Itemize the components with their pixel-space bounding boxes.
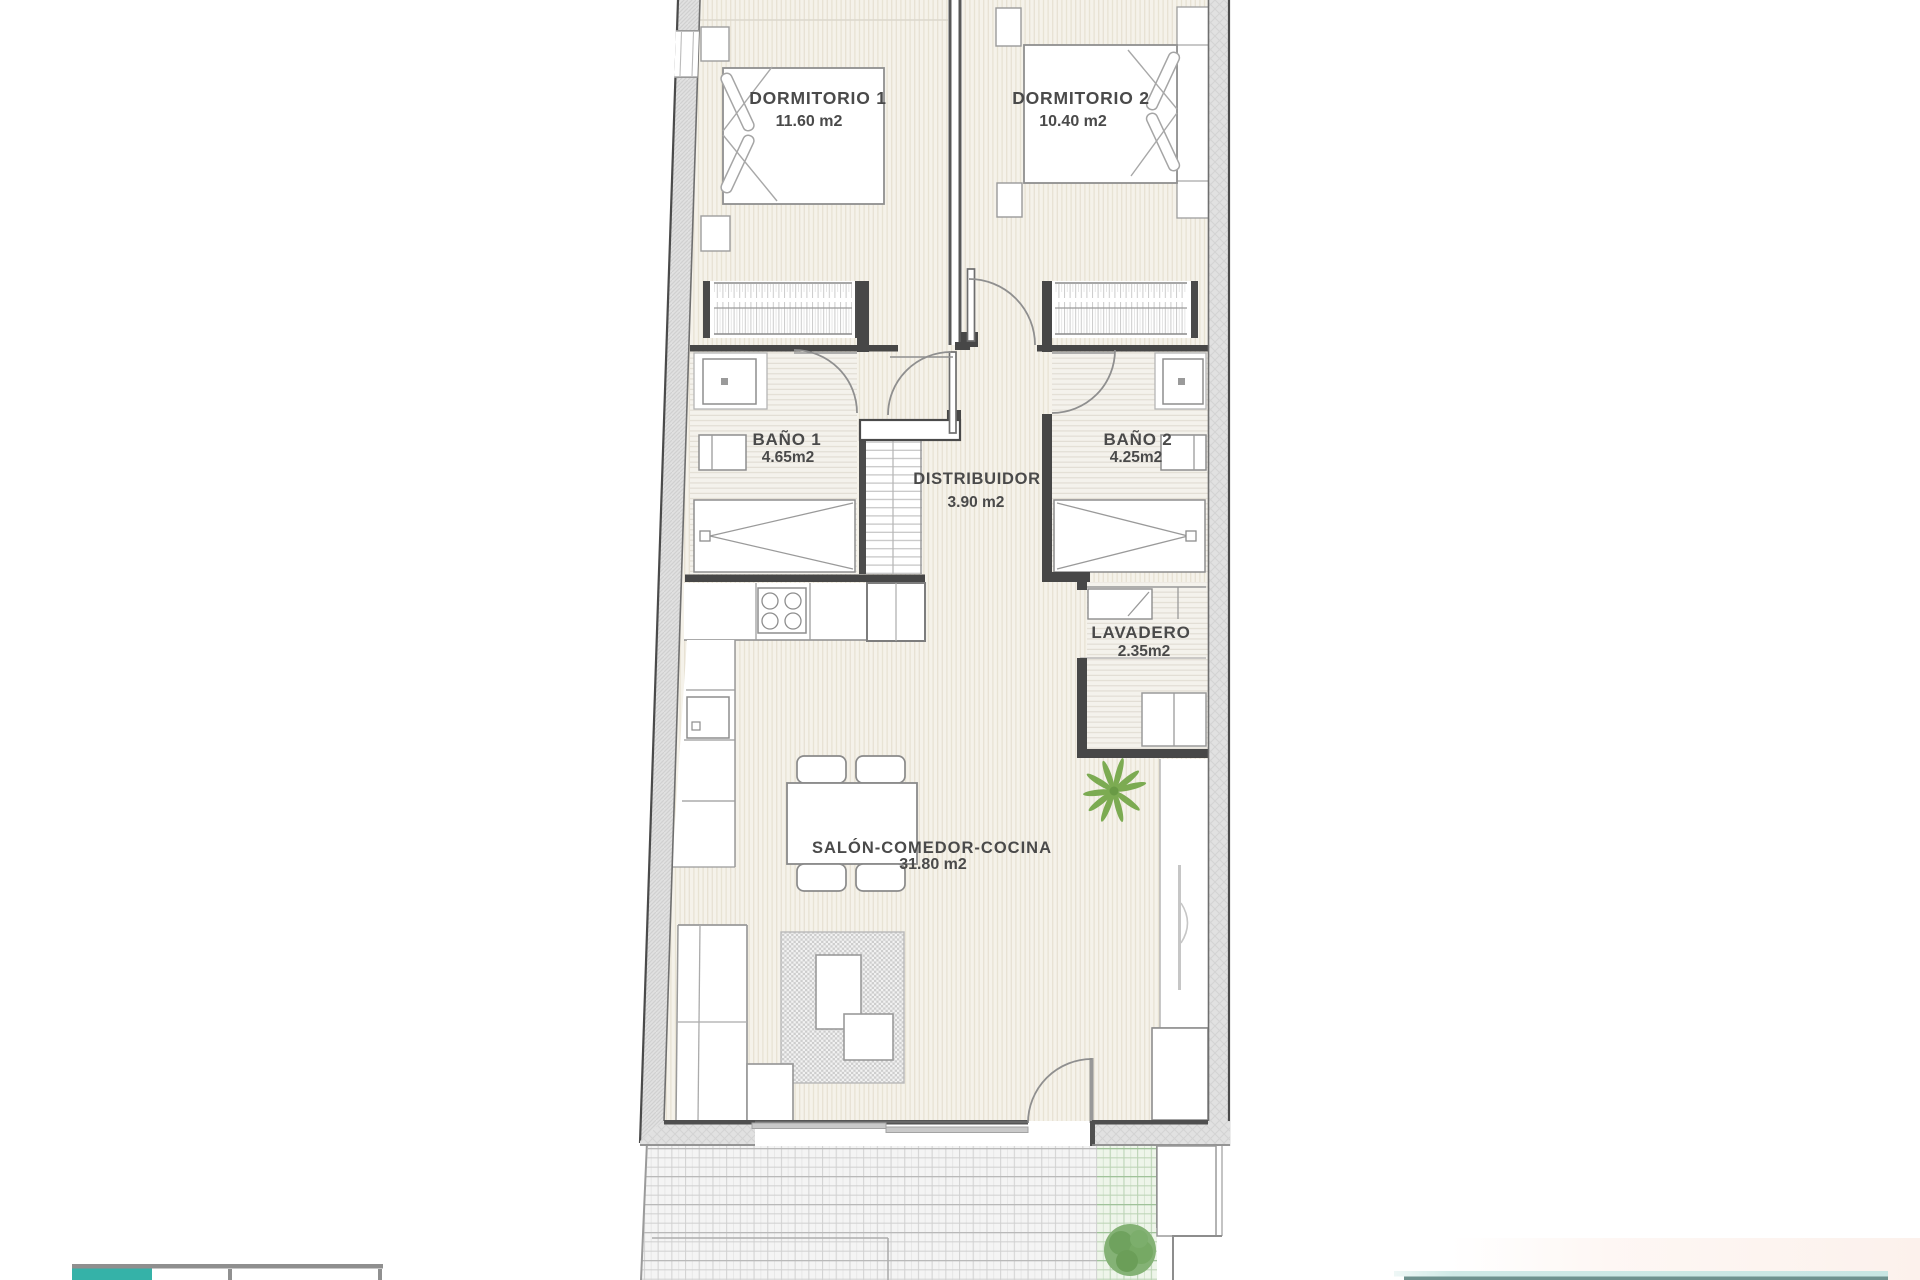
svg-text:DORMITORIO 2: DORMITORIO 2 [1012,88,1150,108]
svg-text:10.40 m2: 10.40 m2 [1039,113,1107,130]
svg-text:2.35m2: 2.35m2 [1118,643,1171,660]
svg-text:4.65m2: 4.65m2 [762,449,815,466]
svg-text:11.60 m2: 11.60 m2 [776,113,843,130]
svg-text:4.25m2: 4.25m2 [1110,449,1163,466]
svg-text:SALÓN-COMEDOR-COCINA: SALÓN-COMEDOR-COCINA [812,838,1052,857]
svg-text:BAÑO 2: BAÑO 2 [1103,429,1172,449]
svg-text:3.90 m2: 3.90 m2 [948,494,1005,511]
svg-text:DORMITORIO 1: DORMITORIO 1 [749,88,887,108]
svg-text:DISTRIBUIDOR: DISTRIBUIDOR [913,470,1041,488]
svg-text:LAVADERO: LAVADERO [1091,623,1190,642]
svg-text:BAÑO 1: BAÑO 1 [752,429,821,449]
svg-text:31.80 m2: 31.80 m2 [899,856,967,873]
